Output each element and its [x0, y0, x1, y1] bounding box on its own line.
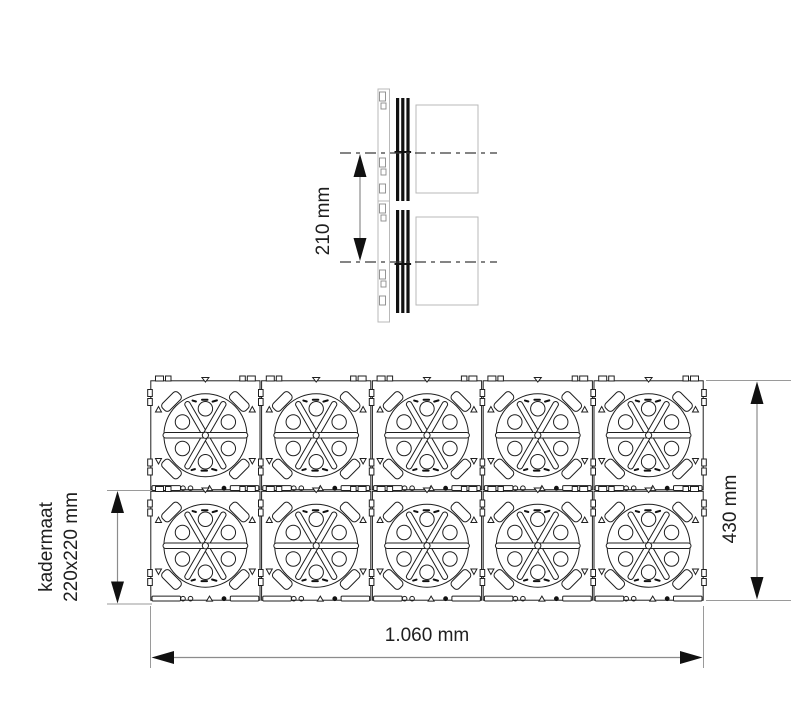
frame-module — [483, 487, 592, 602]
technical-drawing: 210 mm kadermaat 220x220 mm 430 mm 1.060… — [0, 0, 800, 716]
side-view-section: 210 mm — [313, 89, 497, 322]
frame-module — [372, 487, 481, 602]
width-dimension-label: 1.060 mm — [385, 625, 469, 646]
frame-module — [262, 376, 371, 491]
flush-box-unit-top — [378, 89, 478, 210]
spacing-dimension-label: 210 mm — [313, 187, 334, 256]
frame-module — [594, 376, 703, 491]
arrowhead-left-icon — [152, 651, 175, 664]
dimension-frame-size: kadermaat 220x220 mm — [36, 491, 152, 605]
frame-module — [483, 376, 592, 491]
frame-module — [594, 487, 703, 602]
frame-module — [262, 487, 371, 602]
arrowhead-down-icon — [111, 582, 124, 604]
frame-module — [151, 376, 260, 491]
dimension-spacing-210: 210 mm — [313, 154, 367, 261]
arrowhead-up-icon — [354, 154, 367, 177]
frame-module — [151, 487, 260, 602]
height-dimension-label: 430 mm — [720, 475, 741, 544]
frame-module — [372, 376, 481, 491]
frame-size-name-label: kadermaat — [36, 501, 57, 591]
frame-module-grid — [148, 376, 707, 601]
technical-drawing-page: 210 mm kadermaat 220x220 mm 430 mm 1.060… — [0, 0, 800, 716]
frame-size-value-label: 220x220 mm — [61, 492, 82, 602]
arrowhead-up-icon — [111, 491, 124, 513]
arrowhead-down-icon — [354, 238, 367, 261]
arrowhead-up-icon — [751, 382, 764, 405]
arrowhead-right-icon — [680, 651, 703, 664]
arrowhead-down-icon — [751, 577, 764, 600]
dimension-height-430: 430 mm — [706, 381, 791, 601]
dimension-width-1060: 1.060 mm — [151, 606, 704, 668]
